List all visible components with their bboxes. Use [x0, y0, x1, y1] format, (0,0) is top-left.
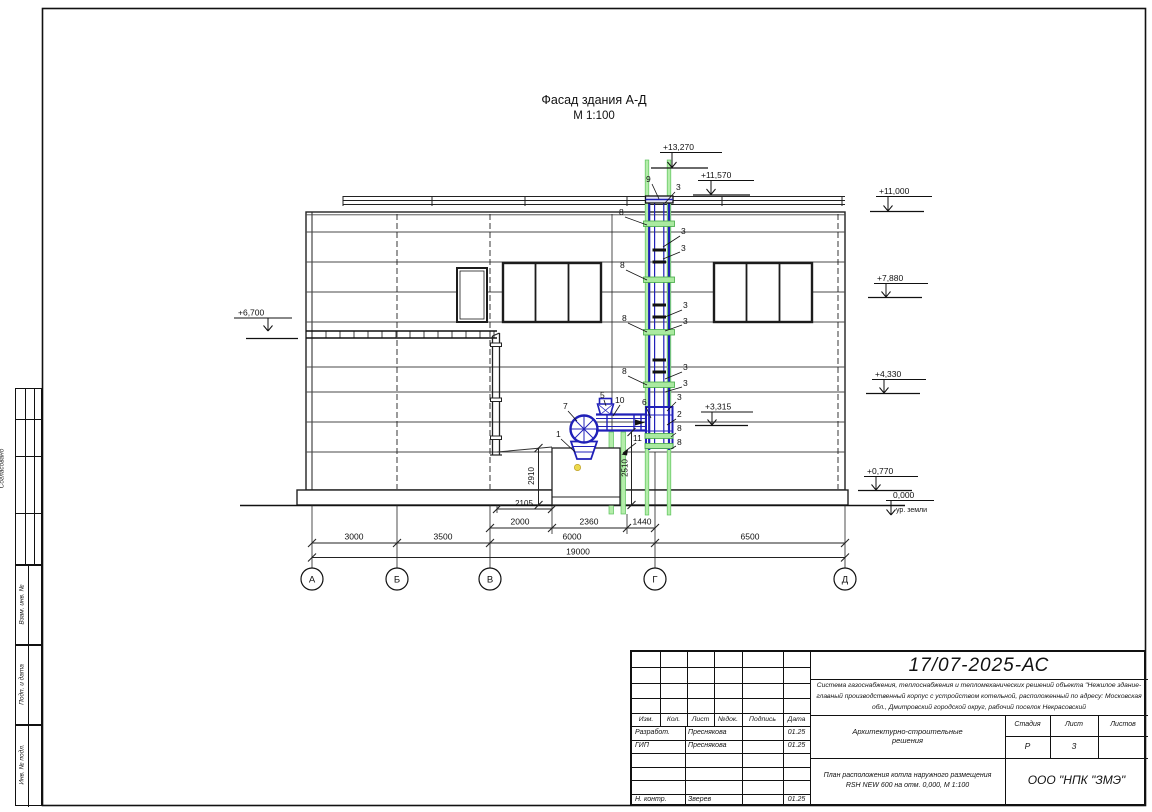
row-role: Н. контр.	[632, 794, 685, 806]
dim-3000: 3000	[345, 532, 364, 542]
svg-text:3: 3	[683, 316, 688, 326]
svg-text:+11,570: +11,570	[701, 170, 732, 180]
row-date: 01.25	[783, 794, 810, 806]
svg-text:+3,315: +3,315	[705, 402, 732, 412]
row-name: Преснякова	[685, 740, 742, 753]
axis-v: В	[487, 575, 493, 586]
svg-text:8: 8	[677, 437, 682, 447]
svg-text:8: 8	[620, 260, 625, 270]
col-izm: Изм.	[632, 713, 660, 726]
dim-2510: 2510	[621, 459, 630, 477]
col-podpis: Подпись	[742, 713, 783, 726]
svg-text:8: 8	[622, 366, 627, 376]
stage-value: Р	[1005, 736, 1050, 758]
col-list: Лист	[687, 713, 714, 726]
svg-text:3: 3	[683, 362, 688, 372]
svg-text:2: 2	[677, 409, 682, 419]
col-data: Дата	[783, 713, 810, 726]
svg-text:1: 1	[556, 429, 561, 439]
doc-number: 17/07-2025-АС	[810, 652, 1148, 679]
svg-text:+11,000: +11,000	[879, 186, 910, 196]
duct-fitting	[598, 399, 614, 415]
svg-text:3: 3	[683, 300, 688, 310]
axis-a: А	[309, 575, 316, 586]
boiler-indicator-dot	[574, 464, 580, 470]
podp-cell: Подп. и дата	[15, 645, 42, 725]
sheet-title-line1: План расположения котла наружного размещ…	[824, 771, 992, 782]
axis-g: Г	[652, 575, 657, 586]
svg-text:3: 3	[676, 182, 681, 192]
flue-elbow	[571, 416, 598, 460]
elevation-6700: +6,700	[234, 308, 298, 339]
vzam-label: Взам. инв. №	[19, 566, 26, 644]
podp-label: Подп. и дата	[19, 646, 26, 724]
company-name: ООО "НПК "ЗМЭ"	[1005, 758, 1148, 804]
section-title: Архитектурно-строительные решения	[810, 715, 1005, 758]
svg-text:6: 6	[642, 397, 647, 407]
row-name: Зверев	[685, 794, 742, 806]
axis-b: Б	[394, 575, 400, 586]
axis-d: Д	[842, 575, 849, 586]
elevation-7880: +7,880	[868, 273, 928, 298]
svg-text:+13,270: +13,270	[663, 142, 694, 152]
elevation-11000: +11,000	[870, 186, 932, 212]
svg-text:8: 8	[677, 423, 682, 433]
row-date: 01.25	[783, 726, 810, 740]
sheet-title: План расположения котла наружного размещ…	[810, 758, 1005, 804]
svg-text:7: 7	[563, 401, 568, 411]
title-block: Изм. Кол. Лист №док. Подпись Дата Разраб…	[630, 650, 1146, 806]
drawing-title: Фасад здания А-Д М 1:100	[541, 93, 647, 122]
sheet-title-line2: RSH NEW 600 на отм. 0,000, М 1:100	[846, 781, 969, 792]
svg-text:3: 3	[681, 226, 686, 236]
sheet-number: 3	[1050, 736, 1098, 758]
stage-label: Стадия	[1005, 715, 1050, 736]
svg-text:8: 8	[619, 207, 624, 217]
elevation-0770: +0,770	[858, 466, 918, 491]
elevation-13270: +13,270	[651, 142, 722, 168]
page-title: Фасад здания А-Д	[541, 93, 647, 107]
svg-text:+7,880: +7,880	[877, 273, 904, 283]
svg-text:3: 3	[681, 243, 686, 253]
elevation-4330: +4,330	[866, 369, 926, 394]
svg-text:9: 9	[646, 174, 651, 184]
row-date: 01.25	[783, 740, 810, 753]
cad-sheet: { "drawing": { "title": "Фасад здания А-…	[0, 0, 1152, 812]
parapet-rail	[343, 196, 845, 206]
svg-text:+4,330: +4,330	[875, 369, 902, 379]
sheet-label: Лист	[1050, 715, 1098, 736]
dim-1440: 1440	[633, 517, 652, 527]
col-kol: Кол.	[660, 713, 687, 726]
svg-text:8: 8	[622, 313, 627, 323]
agreed-label: Согласовано	[0, 424, 6, 514]
dim-2105: 2105	[515, 499, 533, 508]
row-role: ГИП	[632, 740, 685, 753]
stack-cap	[646, 196, 674, 203]
row-name: Преснякова	[685, 726, 742, 740]
row-role: Разработ.	[632, 726, 685, 740]
svg-text:11: 11	[633, 433, 642, 443]
elevation-0000: 0,000 ур. земли	[886, 490, 934, 515]
svg-text:+0,770: +0,770	[867, 466, 894, 476]
svg-text:5: 5	[600, 390, 605, 400]
project-description: Система газоснабжения, теплоснабжения и …	[812, 680, 1146, 715]
dim-2000: 2000	[511, 517, 530, 527]
door	[457, 268, 487, 322]
axis-bubbles: А Б В Г Д	[301, 568, 856, 590]
col-ndok: №док.	[714, 713, 742, 726]
dim-19000: 19000	[566, 547, 590, 557]
window-right	[714, 263, 812, 322]
left-margin-grid	[15, 388, 42, 565]
window-center	[503, 263, 601, 322]
elevation-11570: +11,570	[693, 170, 754, 195]
inv-label: Инв. № подл.	[19, 726, 26, 804]
inv-cell: Инв. № подл.	[15, 725, 42, 806]
dim-3500: 3500	[434, 532, 453, 542]
sheets-label: Листов	[1098, 715, 1148, 736]
svg-text:+6,700: +6,700	[238, 308, 265, 318]
dim-6000: 6000	[563, 532, 582, 542]
svg-text:10: 10	[615, 395, 625, 405]
vzam-cell: Взам. инв. №	[15, 565, 42, 645]
svg-text:3: 3	[683, 378, 688, 388]
section-title-line2: решения	[892, 737, 923, 746]
dim-6500: 6500	[741, 532, 760, 542]
dim-2910: 2910	[527, 467, 536, 485]
ground-level-label: ур. земли	[896, 507, 927, 514]
page-scale: М 1:100	[573, 110, 615, 122]
svg-text:0,000: 0,000	[893, 490, 915, 500]
svg-text:3: 3	[677, 392, 682, 402]
dim-2360: 2360	[580, 517, 599, 527]
